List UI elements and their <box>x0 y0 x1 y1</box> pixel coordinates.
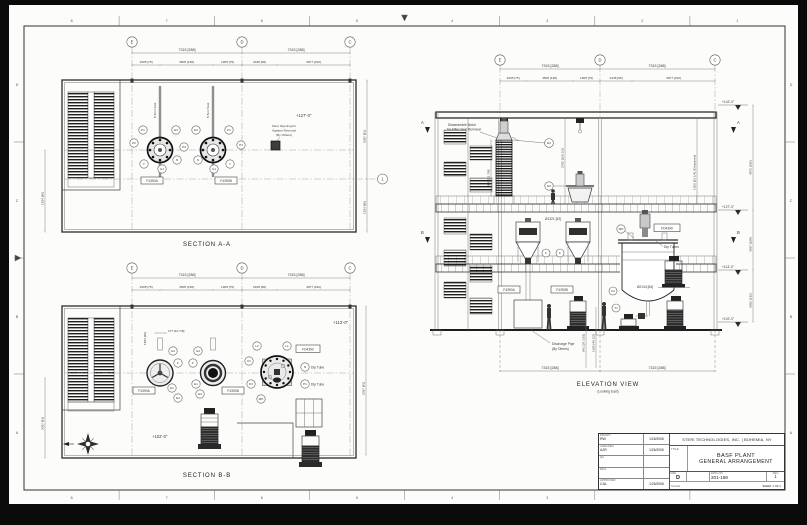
discharge-note: (By Others) <box>552 347 569 351</box>
tag-e4: E4 <box>176 396 180 400</box>
agitator-elevation: E3 2782 [109 1/2] 1302 [51 1/4] (Clearan… <box>545 118 697 204</box>
tag-g1: G1 <box>212 167 216 171</box>
dim-bay: 3505 [138] <box>179 60 194 64</box>
zone-bot-6: 6 <box>261 496 263 500</box>
tag-n: N <box>176 158 178 162</box>
dim-bay: 4877 [192] <box>306 60 321 64</box>
dim-aa-right-bot: 1524 [60] <box>363 201 367 214</box>
pump-2 <box>299 430 322 467</box>
tag-mh: MH <box>619 227 624 231</box>
dip-tube-note: Dip Tube <box>311 382 324 386</box>
tag-e1: E1 <box>170 386 174 390</box>
dim-bb-vert: 1524 [60] <box>143 332 147 345</box>
zone-top-3: 3 <box>546 19 548 23</box>
dwg-no-value: 201-169 <box>711 475 765 480</box>
tag-e3: E3 <box>194 128 198 132</box>
row-name: AJR <box>600 448 642 452</box>
filter-elevation: E3 Disassemble Motor for Filter Seal Rem… <box>447 118 553 204</box>
elevation-note-upper: +127'-0" <box>296 113 312 118</box>
vessel-b-plan: F4390B <box>201 338 245 394</box>
tag-l2: L2 <box>255 344 259 348</box>
tag-t: T <box>229 162 231 166</box>
level-grade: +102'-0" <box>722 317 735 321</box>
zone-right-c: C <box>790 199 793 203</box>
row-label: MFG <box>600 468 642 471</box>
grid-bubble-d: D <box>240 40 243 45</box>
section-bb-view: E D C 7315 [288] 7315 [288] 1905 [75] 35… <box>41 263 367 479</box>
rev-value: 1 <box>774 475 776 479</box>
zone-top-4: 4 <box>451 19 453 23</box>
dim-span: 7315 [288] <box>649 366 666 370</box>
section-aa-title: SECTION A-A <box>183 242 231 248</box>
zone-right-b: B <box>790 315 793 319</box>
level-roof: +142'-0" <box>722 100 735 104</box>
tag-f: F <box>545 251 547 255</box>
cut-arrow-b-right: B <box>737 230 740 235</box>
titleblock-row-approved: APPROVEDCAL 1/26/2006 <box>599 479 669 489</box>
floor-opening-hatch <box>271 141 280 150</box>
dim-el-dia1: Ø1321 [52] <box>545 217 561 221</box>
titleblock-spare-cell <box>687 472 710 481</box>
zone-top-5: 5 <box>356 19 358 23</box>
floor-opening-note: Floor Opening for <box>272 124 296 128</box>
section-bb-title: SECTION B-B <box>183 473 231 479</box>
row-name: RW <box>600 437 642 441</box>
elevation-note-grade: +102'-0" <box>152 434 168 439</box>
dim-bay: 1905 [75] <box>507 76 520 80</box>
dim-bay: 1905 [75] <box>140 60 153 64</box>
zone-bot-8: 8 <box>71 496 73 500</box>
sheet-number: SHEET 1 OF 1 <box>731 484 784 488</box>
dim-bay: 4877 [192] <box>306 285 321 289</box>
dim-span: 7315 [288] <box>179 273 196 277</box>
compass-rose <box>63 433 99 455</box>
elevation-note-mezz: +113'-0" <box>333 320 349 325</box>
drawing-stage: 8 7 6 5 4 3 2 1 8 7 6 5 4 3 D C B A D C … <box>0 0 807 525</box>
dim-bb-small: 277 [10 7/8] <box>168 329 184 333</box>
dim-el-d1: 905 [31 7/8] <box>487 170 491 186</box>
elevation-grid: E D C <box>495 55 720 372</box>
section-aa-dimensions: 7315 [288] 7315 [288] 1905 [75] 3505 [13… <box>132 48 350 65</box>
equipment-label-filter-b: F4390B <box>227 389 239 393</box>
grid-bubble-d: D <box>598 58 601 63</box>
section-aa-notes: +127'-0" Floor Opening for Agitator Remo… <box>271 113 312 150</box>
row-date <box>643 468 669 478</box>
tag-p3: P3 <box>182 145 186 149</box>
row-name: CAL <box>600 482 642 486</box>
zone-top-2: 2 <box>641 19 643 23</box>
tag-n: N <box>197 158 199 162</box>
zone-bot-5: 5 <box>356 496 358 500</box>
discharge-note: Discharge Pipe <box>552 342 575 346</box>
level-mezz: +113'-0" <box>722 265 735 269</box>
zone-top-6: 6 <box>261 19 263 23</box>
tag-g1: G1 <box>160 167 164 171</box>
hoist-trolleys <box>500 118 584 133</box>
zone-left-a: A <box>16 431 19 435</box>
hoist-monorails: 5 Ton Hoist 5 Ton Hoist <box>153 86 213 177</box>
tag-p1: P1 <box>227 128 231 132</box>
tag-p2: P2 <box>132 141 136 145</box>
dim-bay: 3505 [138] <box>542 76 557 80</box>
grid-bubble-e: E <box>499 58 502 63</box>
equipment-label-filter-b: F4390B <box>556 288 568 292</box>
tag-k1: K1 <box>247 359 251 363</box>
grid-bubble-c: C <box>348 40 351 45</box>
elevation-dimensions-bottom: 7315 [288] 7315 [288] <box>500 366 715 371</box>
dip-tubes-note: Dip Tubes <box>664 245 679 249</box>
equipment-label-filter-a: F4390A <box>146 179 158 183</box>
tag-l1: L1 <box>285 344 289 348</box>
drawing-title-line2: GENERAL ARRANGEMENT <box>699 459 773 465</box>
grid-bubble-d: D <box>240 266 243 271</box>
grid-bubble-c: C <box>713 58 716 63</box>
dim-span: 7315 [288] <box>542 366 559 370</box>
pump-elevation-1 <box>567 296 589 330</box>
zone-right-a: A <box>790 431 793 435</box>
row-label: QA <box>600 456 642 459</box>
titleblock-row-qa: QA <box>599 456 669 467</box>
dim-el-d2: 2782 [109 1/2] <box>561 148 565 168</box>
section-bb-dimensions: 7315 [288] 7315 [288] 1905 [75] 3505 [13… <box>132 273 350 290</box>
zone-bot-7: 7 <box>166 496 168 500</box>
tag-n: N <box>304 365 306 369</box>
zone-left-b: B <box>16 315 19 319</box>
dim-span: 7315 [288] <box>179 48 196 52</box>
hoist-label: 5 Ton Hoist <box>153 102 157 118</box>
tag-e3: E3 <box>547 184 551 188</box>
equipment-label-filter-a: F4390A <box>503 288 515 292</box>
motor-removal-note: for Filter Seal Removal <box>447 128 481 132</box>
floor-opening-note: Agitator Removal <box>272 129 296 133</box>
dim-bay: 2438 [96] <box>253 60 266 64</box>
hoist-label: 5 Ton Hoist <box>206 102 210 118</box>
cut-arrow-a-right: A <box>737 120 740 125</box>
equipment-label-reactor: FD4390 <box>661 227 673 231</box>
dim-span: 7315 [288] <box>288 273 305 277</box>
tag-f: F <box>192 361 194 365</box>
elevation-stairs <box>444 118 492 330</box>
elevation-subtitle: (Looking East) <box>597 390 618 394</box>
dim-bay: 2438 [96] <box>610 76 623 80</box>
dim-el-b2: 1180 [46 1/2] <box>592 334 596 352</box>
row-date: 1/26/2006 <box>643 445 669 455</box>
elevation-title: ELEVATION VIEW <box>577 382 639 388</box>
dim-el-right-bot: 3352 [132] <box>749 293 753 308</box>
dim-bay: 3505 [138] <box>179 285 194 289</box>
pump-1 <box>198 408 221 449</box>
tag-e3: E3 <box>174 128 178 132</box>
section-aa-view: E D C 7315 [288] 7315 [288] 1905 [75] 35… <box>41 37 388 248</box>
title-label: TITLE <box>670 446 688 471</box>
scale-label: SCALE <box>670 484 731 488</box>
elevation-level-markers: +142'-0" +127'-0" +113'-0" +102'-0" 4572… <box>718 100 753 327</box>
dim-el-dia2: Ø2134 [84] <box>637 285 653 289</box>
zone-top-7: 7 <box>166 19 168 23</box>
tag-e3: E3 <box>547 141 551 145</box>
tag-k3: K3 <box>249 382 253 386</box>
discharge-pipe: Discharge Pipe (By Others) <box>514 264 575 351</box>
title-block: DRAWNRW 1/26/2006 CHECKEDAJR 1/26/2006 Q… <box>598 433 785 490</box>
reactor-elevation: MH FD4390 Dip Tubes Ø2134 [84] F2 T1 941… <box>582 210 681 368</box>
elevation-dimensions-top: 7315 [288] 7315 [288] 1905 [75] 3505 [13… <box>500 64 715 81</box>
dim-bb-left: 2057 [81] <box>41 417 45 430</box>
tag-e1: E1 <box>194 382 198 386</box>
tag-p1: P1 <box>303 382 307 386</box>
zone-top-1: 1 <box>736 19 738 23</box>
title-block-signatures: DRAWNRW 1/26/2006 CHECKEDAJR 1/26/2006 Q… <box>599 434 670 489</box>
tag-g2: G2 <box>171 349 175 353</box>
dim-bay: 1905 [75] <box>221 285 234 289</box>
tag-f: F <box>559 251 561 255</box>
dim-span: 7315 [288] <box>542 64 559 68</box>
dim-bay: 4877 [192] <box>666 76 681 80</box>
company-name: STERI TECHNOLOGIES, INC. | BOHEMIA, NY <box>670 434 784 446</box>
row-date: 1/26/2006 <box>643 479 669 489</box>
dim-el-b1: 941 [37 1/16] <box>582 334 586 352</box>
row-date: 1/26/2006 <box>643 434 669 444</box>
grid-bubble-c: C <box>348 266 351 271</box>
dim-aa-right-top: 2057 [81] <box>363 130 367 143</box>
equipment-label-reactor: FD4390 <box>302 348 314 352</box>
tag-f2: F2 <box>611 289 615 293</box>
grid-bubble-e: E <box>131 40 134 45</box>
dim-el-clearance: 1302 [51 1/4] (Clearance) <box>693 155 697 190</box>
dim-bay: 1905 [75] <box>140 285 153 289</box>
zone-right-d: D <box>790 83 793 87</box>
dim-bay: 1905 [75] <box>221 60 234 64</box>
vessel-a-plan: F4390A <box>133 338 173 394</box>
row-date <box>643 456 669 466</box>
dim-aa-left: 1524 [60] <box>41 192 45 205</box>
tag-mh: MH <box>259 397 264 401</box>
dip-tube-note: Dip Tube <box>311 365 324 369</box>
section-bb-grid: E D C <box>127 263 355 455</box>
tag-t: T <box>143 162 145 166</box>
titleblock-row-checked: CHECKEDAJR 1/26/2006 <box>599 445 669 456</box>
equipment-label-filter-b: F4390B <box>220 179 232 183</box>
dim-span: 7315 [288] <box>288 48 305 52</box>
tag-p1: P1 <box>141 128 145 132</box>
grid-bubble-e: E <box>131 266 134 271</box>
size-value: D <box>676 475 680 481</box>
zone-left-d: D <box>16 83 19 87</box>
tag-p3: P3 <box>239 143 243 147</box>
tag-g2: G2 <box>196 349 200 353</box>
tag-f: F <box>177 361 179 365</box>
zone-bot-3: 3 <box>546 496 548 500</box>
cut-arrow-b-left: B <box>421 230 424 235</box>
zone-left-c: C <box>16 199 19 203</box>
dim-bb-right: 2057 [81] <box>362 382 366 395</box>
cut-arrow-a-left: A <box>421 120 424 125</box>
dim-span: 7315 [288] <box>649 64 666 68</box>
level-upper: +127'-0" <box>722 205 735 209</box>
dim-el-right-mid: 4267 [168] <box>749 237 753 252</box>
zone-bot-4: 4 <box>451 496 453 500</box>
tag-t1: T1 <box>614 306 618 310</box>
dim-bay: 1905 [75] <box>580 76 593 80</box>
motor-removal-note: Disassemble Motor <box>448 123 477 127</box>
floor-opening-note: (By Others) <box>276 133 292 137</box>
dim-bay: 2438 [96] <box>253 285 266 289</box>
dim-el-right-top: 4572 [180] <box>749 160 753 175</box>
elevation-view: E D C 7315 [288] 7315 [288] 1905 [75] 35… <box>421 55 753 394</box>
tag-e4: E4 <box>198 392 202 396</box>
zone-top-8: 8 <box>71 19 73 23</box>
equipment-label-filter-a: F4390A <box>138 389 150 393</box>
